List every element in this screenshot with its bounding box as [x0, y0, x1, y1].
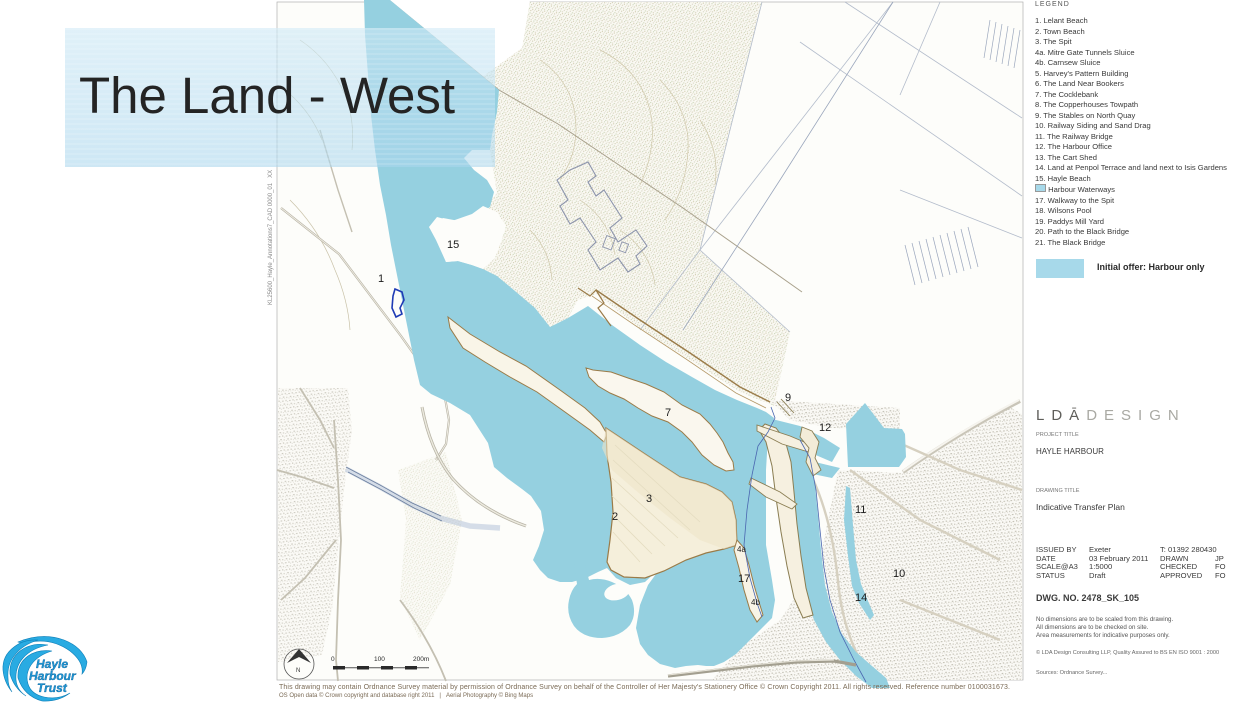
svg-text:3: 3: [646, 493, 652, 505]
svg-text:17: 17: [738, 573, 750, 585]
svg-text:100: 100: [374, 656, 385, 663]
svg-text:9: 9: [785, 392, 791, 404]
svg-text:200m: 200m: [413, 656, 429, 663]
svg-text:OS Open data © Crown copyright: OS Open data © Crown copyright and datab…: [279, 692, 533, 699]
svg-text:12: 12: [819, 422, 831, 434]
svg-text:KL25600_Hayle_Annotations7_CAD: KL25600_Hayle_Annotations7_CAD 0000_01 X…: [268, 170, 274, 305]
svg-text:10: 10: [893, 568, 905, 580]
svg-text:Trust: Trust: [37, 681, 68, 695]
svg-text:N: N: [296, 668, 300, 674]
svg-text:14: 14: [855, 592, 867, 604]
svg-text:2: 2: [612, 511, 618, 523]
svg-text:1: 1: [378, 273, 384, 285]
svg-text:7: 7: [665, 407, 671, 419]
svg-text:This drawing may contain Ordna: This drawing may contain Ordnance Survey…: [279, 683, 1010, 691]
svg-text:0: 0: [331, 656, 335, 663]
svg-text:15: 15: [447, 239, 459, 251]
svg-text:4b: 4b: [751, 598, 760, 607]
svg-text:4a: 4a: [737, 545, 746, 554]
svg-text:11: 11: [855, 504, 866, 516]
